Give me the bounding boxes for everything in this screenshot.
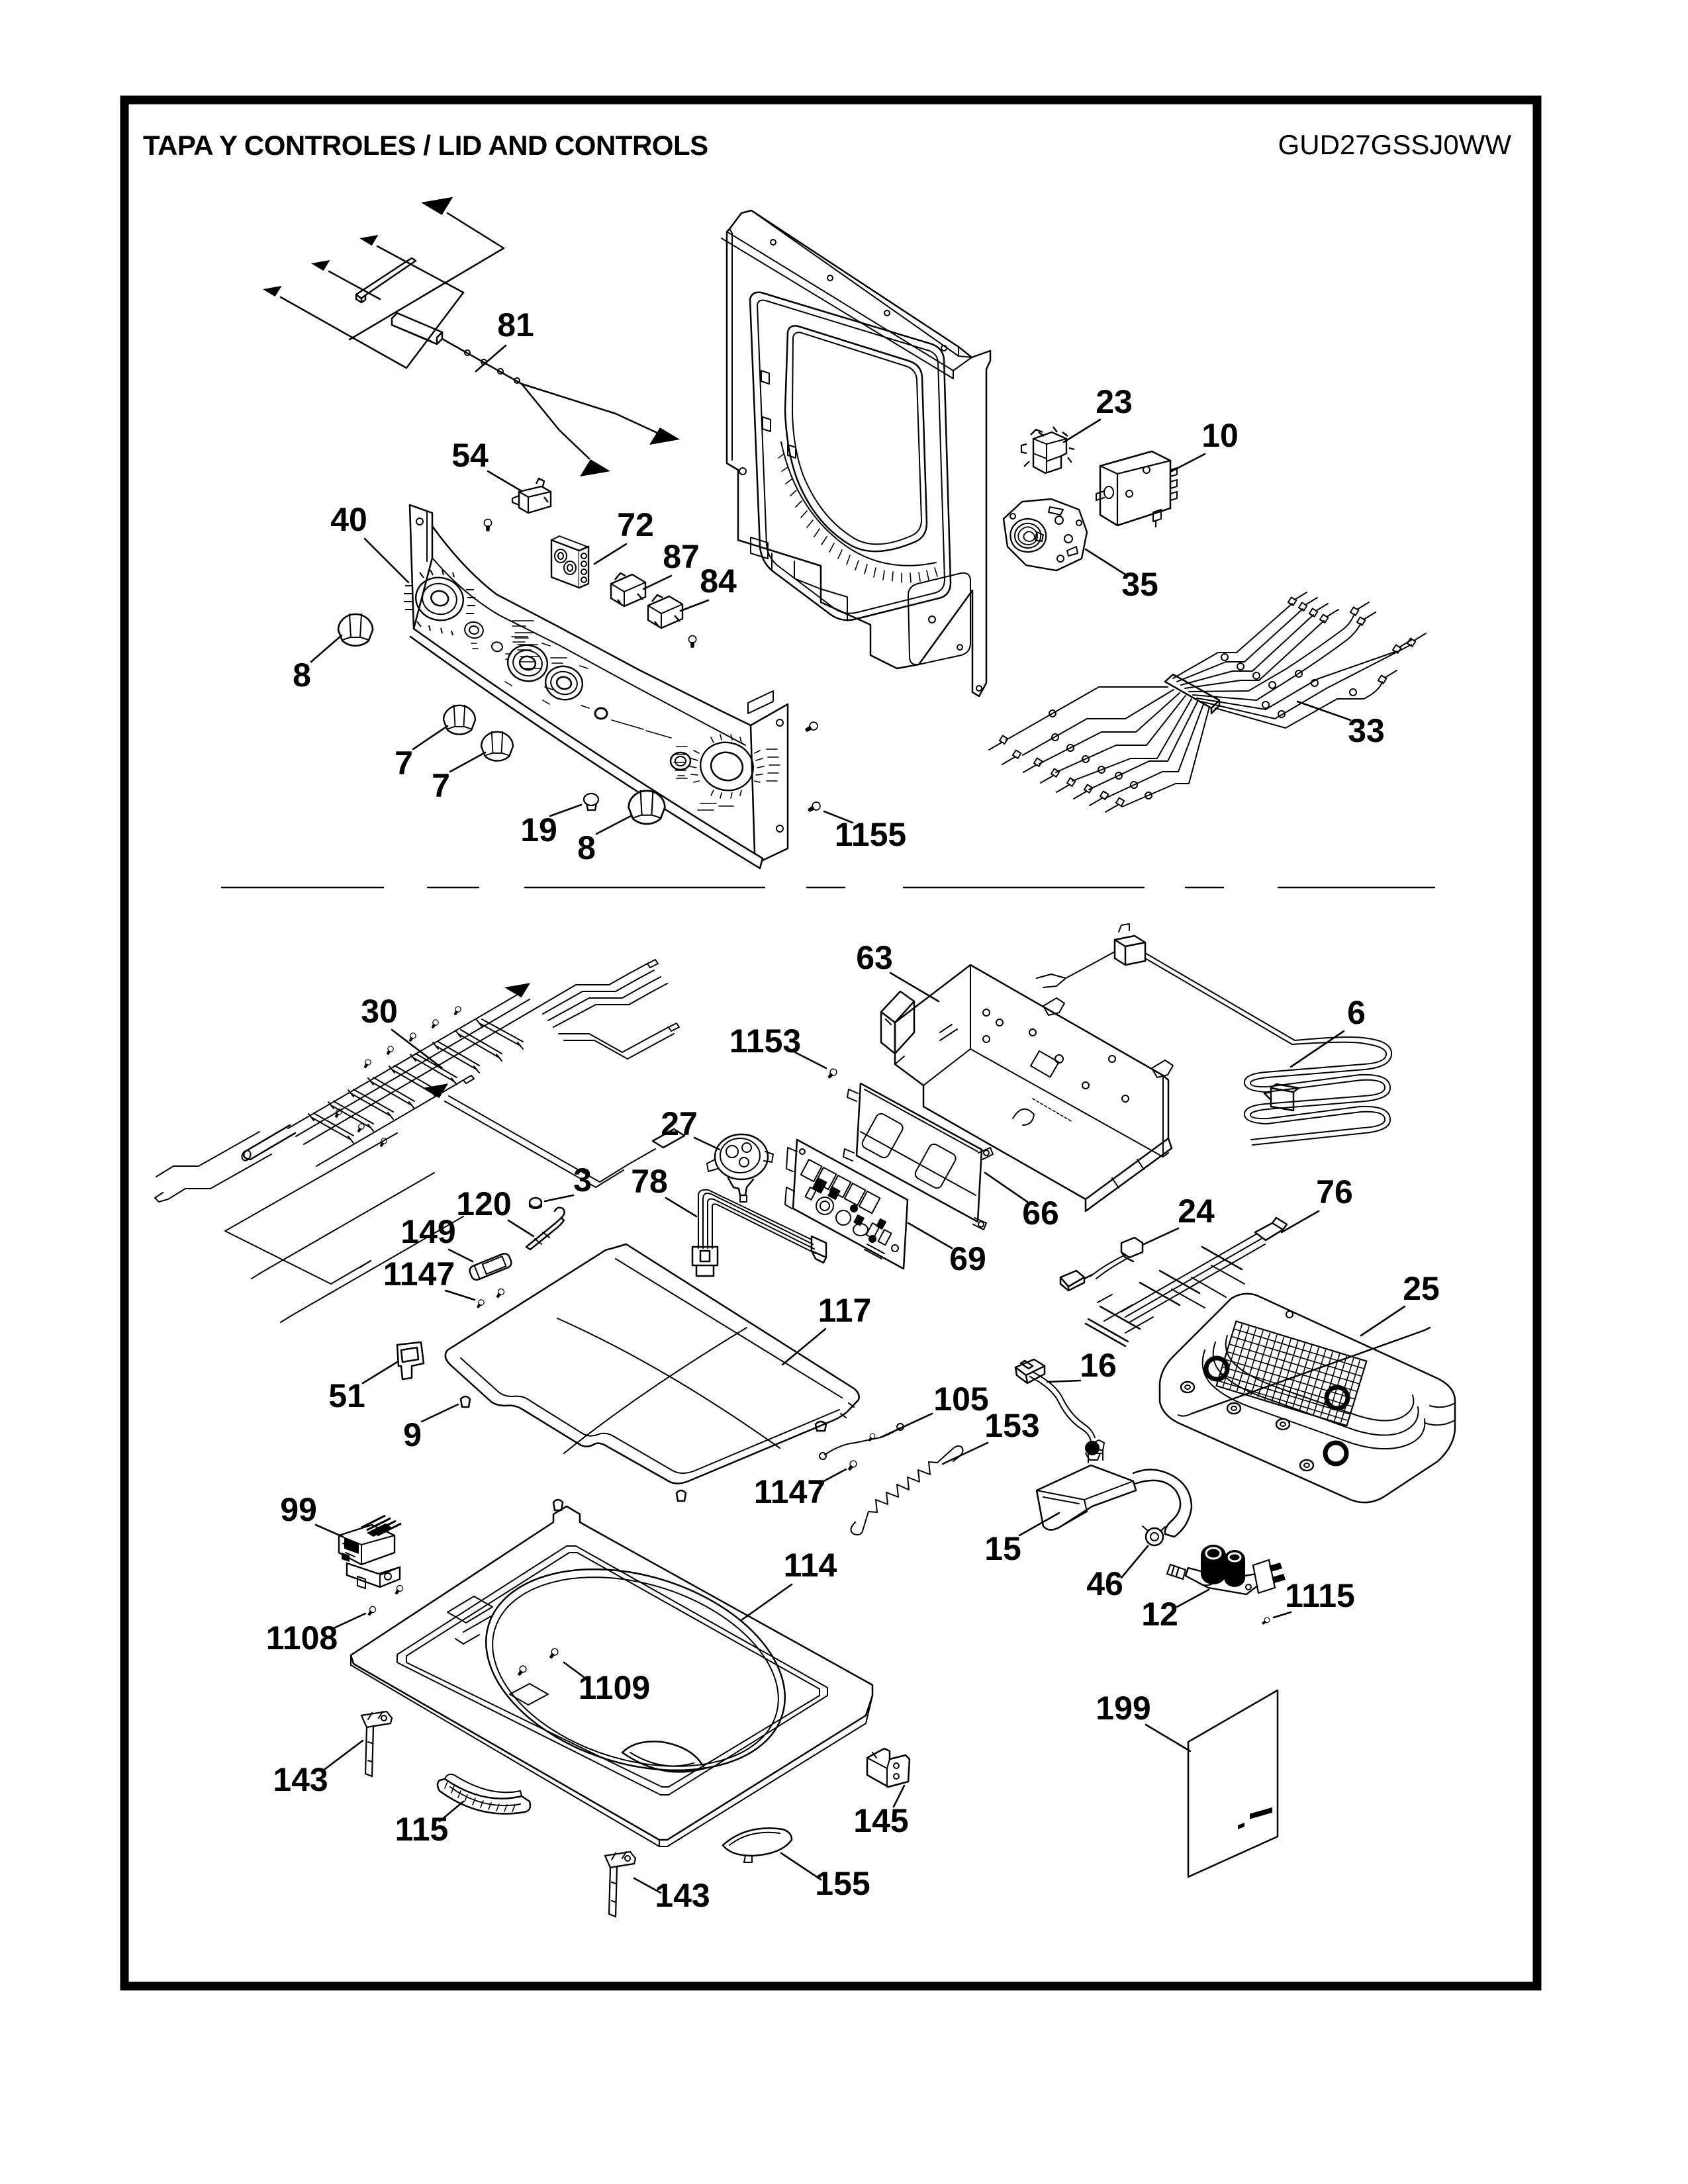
svg-text:145: 145 bbox=[853, 1802, 908, 1839]
svg-text:1147: 1147 bbox=[383, 1255, 455, 1293]
svg-text:199: 199 bbox=[1096, 1690, 1150, 1727]
svg-text:TAPA Y CONTROLES / LID AND CO: TAPA Y CONTROLES / LID AND CONTROLS bbox=[143, 130, 708, 161]
svg-text:10: 10 bbox=[1201, 417, 1239, 454]
svg-text:16: 16 bbox=[1080, 1347, 1117, 1384]
svg-text:76: 76 bbox=[1316, 1173, 1353, 1210]
svg-text:120: 120 bbox=[456, 1185, 511, 1222]
svg-text:78: 78 bbox=[631, 1163, 668, 1200]
svg-text:15: 15 bbox=[984, 1530, 1021, 1567]
svg-text:117: 117 bbox=[818, 1292, 872, 1329]
svg-text:66: 66 bbox=[1022, 1195, 1059, 1232]
svg-text:6: 6 bbox=[1347, 994, 1366, 1031]
svg-text:1109: 1109 bbox=[579, 1669, 650, 1706]
svg-text:25: 25 bbox=[1403, 1270, 1440, 1307]
svg-text:GUD27GSSJ0WW: GUD27GSSJ0WW bbox=[1278, 129, 1512, 160]
svg-text:8: 8 bbox=[577, 829, 596, 866]
svg-text:114: 114 bbox=[784, 1547, 837, 1584]
svg-text:7: 7 bbox=[395, 745, 413, 782]
svg-text:33: 33 bbox=[1348, 712, 1385, 749]
svg-text:51: 51 bbox=[328, 1377, 365, 1414]
svg-text:115: 115 bbox=[395, 1811, 449, 1848]
svg-text:19: 19 bbox=[520, 811, 557, 848]
svg-text:12: 12 bbox=[1141, 1596, 1178, 1633]
svg-text:81: 81 bbox=[497, 306, 534, 343]
svg-text:54: 54 bbox=[451, 437, 489, 474]
svg-text:30: 30 bbox=[361, 993, 398, 1030]
svg-text:87: 87 bbox=[663, 538, 700, 575]
svg-text:69: 69 bbox=[949, 1240, 986, 1277]
svg-text:1108: 1108 bbox=[266, 1619, 338, 1657]
svg-text:46: 46 bbox=[1086, 1565, 1123, 1602]
svg-text:27: 27 bbox=[661, 1105, 698, 1142]
svg-text:1115: 1115 bbox=[1285, 1577, 1355, 1614]
svg-text:35: 35 bbox=[1121, 566, 1158, 603]
svg-text:84: 84 bbox=[700, 563, 737, 600]
svg-text:7: 7 bbox=[432, 767, 450, 804]
svg-text:1147: 1147 bbox=[754, 1473, 825, 1510]
svg-text:40: 40 bbox=[330, 501, 367, 538]
svg-text:143: 143 bbox=[273, 1761, 328, 1798]
svg-text:155: 155 bbox=[815, 1865, 870, 1902]
svg-text:153: 153 bbox=[984, 1407, 1039, 1444]
svg-text:23: 23 bbox=[1096, 383, 1133, 420]
svg-text:9: 9 bbox=[403, 1416, 422, 1453]
svg-text:1153: 1153 bbox=[729, 1023, 801, 1060]
svg-text:8: 8 bbox=[293, 657, 311, 694]
svg-text:3: 3 bbox=[573, 1161, 592, 1199]
svg-text:1155: 1155 bbox=[835, 816, 906, 853]
svg-text:105: 105 bbox=[933, 1381, 988, 1418]
svg-text:24: 24 bbox=[1178, 1193, 1215, 1230]
svg-text:99: 99 bbox=[280, 1491, 317, 1528]
svg-text:72: 72 bbox=[617, 506, 654, 543]
svg-text:149: 149 bbox=[400, 1213, 455, 1250]
svg-text:143: 143 bbox=[655, 1877, 710, 1914]
svg-text:63: 63 bbox=[856, 939, 893, 976]
